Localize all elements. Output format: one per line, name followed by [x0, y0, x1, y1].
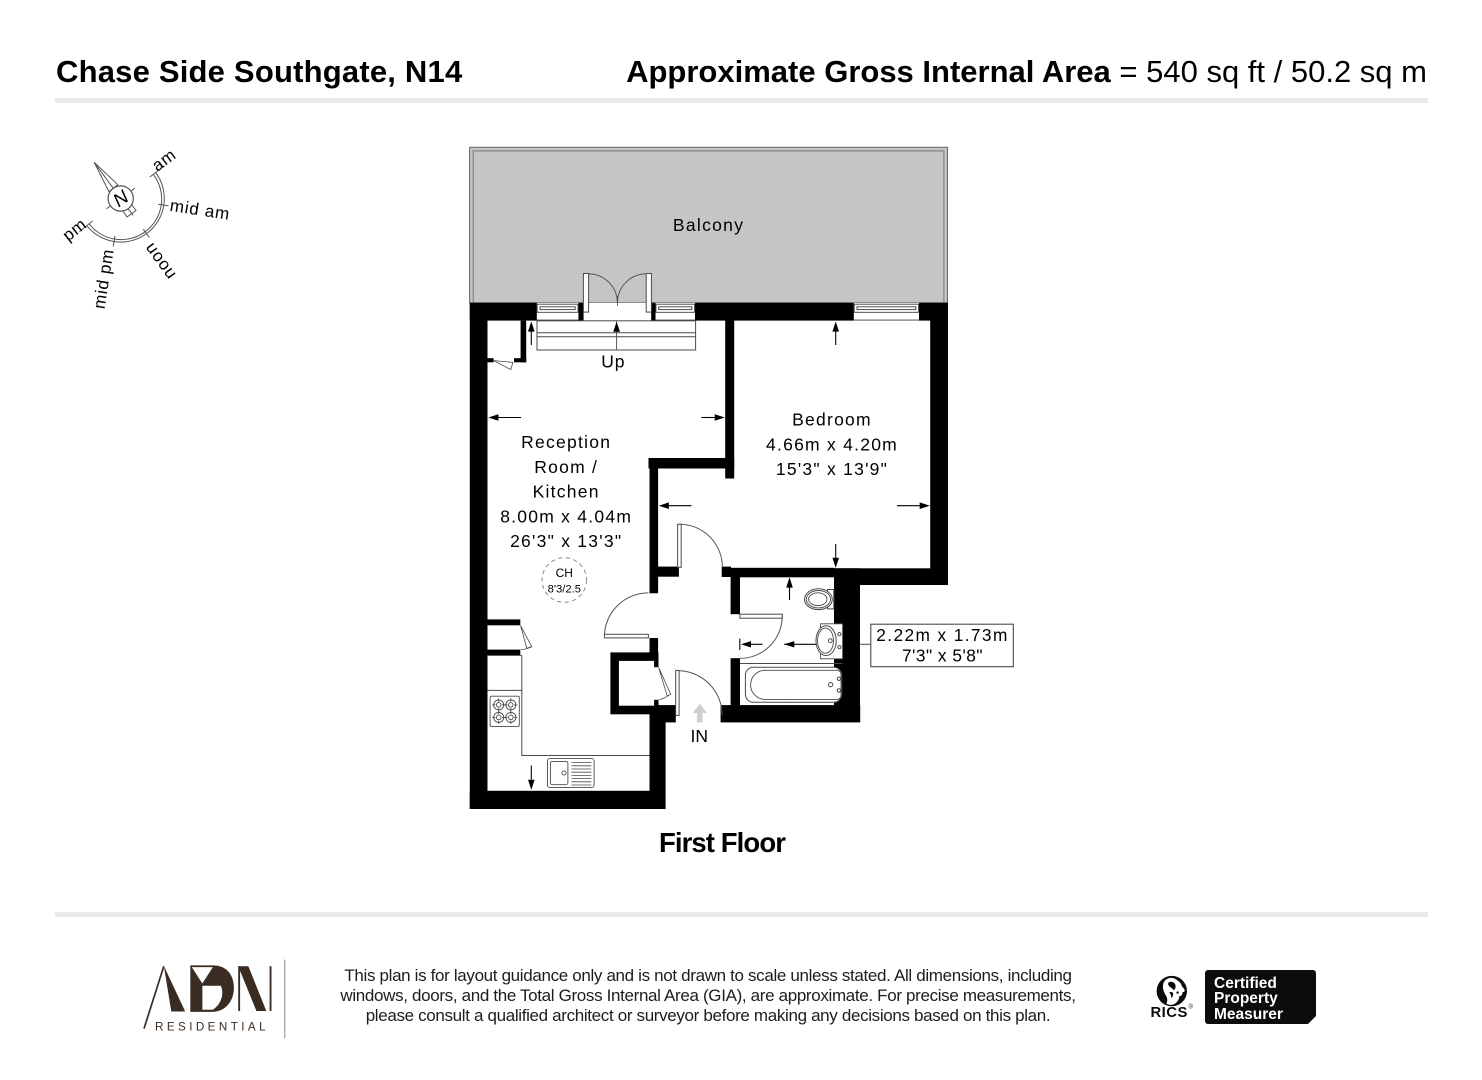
svg-text:noon: noon	[140, 239, 180, 283]
svg-text:8'3/2.5: 8'3/2.5	[548, 584, 581, 596]
svg-text:am: am	[148, 145, 180, 175]
svg-text:Room /: Room /	[534, 457, 598, 477]
svg-text:®: ®	[1189, 1004, 1194, 1011]
svg-text:RESIDENTIAL: RESIDENTIAL	[155, 1021, 269, 1034]
svg-text:RICS: RICS	[1151, 1005, 1188, 1021]
svg-text:4.66m x 4.20m: 4.66m x 4.20m	[766, 435, 898, 455]
svg-text:mid pm: mid pm	[90, 247, 118, 310]
svg-text:15'3" x 13'9": 15'3" x 13'9"	[776, 459, 888, 479]
svg-text:Up: Up	[601, 351, 625, 371]
svg-text:2.22m x 1.73m: 2.22m x 1.73m	[876, 625, 1009, 645]
svg-text:7'3" x 5'8": 7'3" x 5'8"	[902, 645, 983, 665]
svg-text:Kitchen: Kitchen	[533, 482, 600, 502]
svg-text:CH: CH	[556, 566, 573, 580]
svg-text:mid am: mid am	[169, 196, 232, 224]
svg-text:pm: pm	[59, 214, 91, 245]
svg-text:IN: IN	[691, 726, 709, 746]
svg-text:26'3" x 13'3": 26'3" x 13'3"	[510, 531, 622, 551]
svg-text:Reception: Reception	[521, 432, 611, 452]
svg-text:Bedroom: Bedroom	[792, 410, 872, 430]
svg-text:Balcony: Balcony	[673, 215, 744, 235]
svg-text:8.00m x 4.04m: 8.00m x 4.04m	[500, 507, 632, 527]
